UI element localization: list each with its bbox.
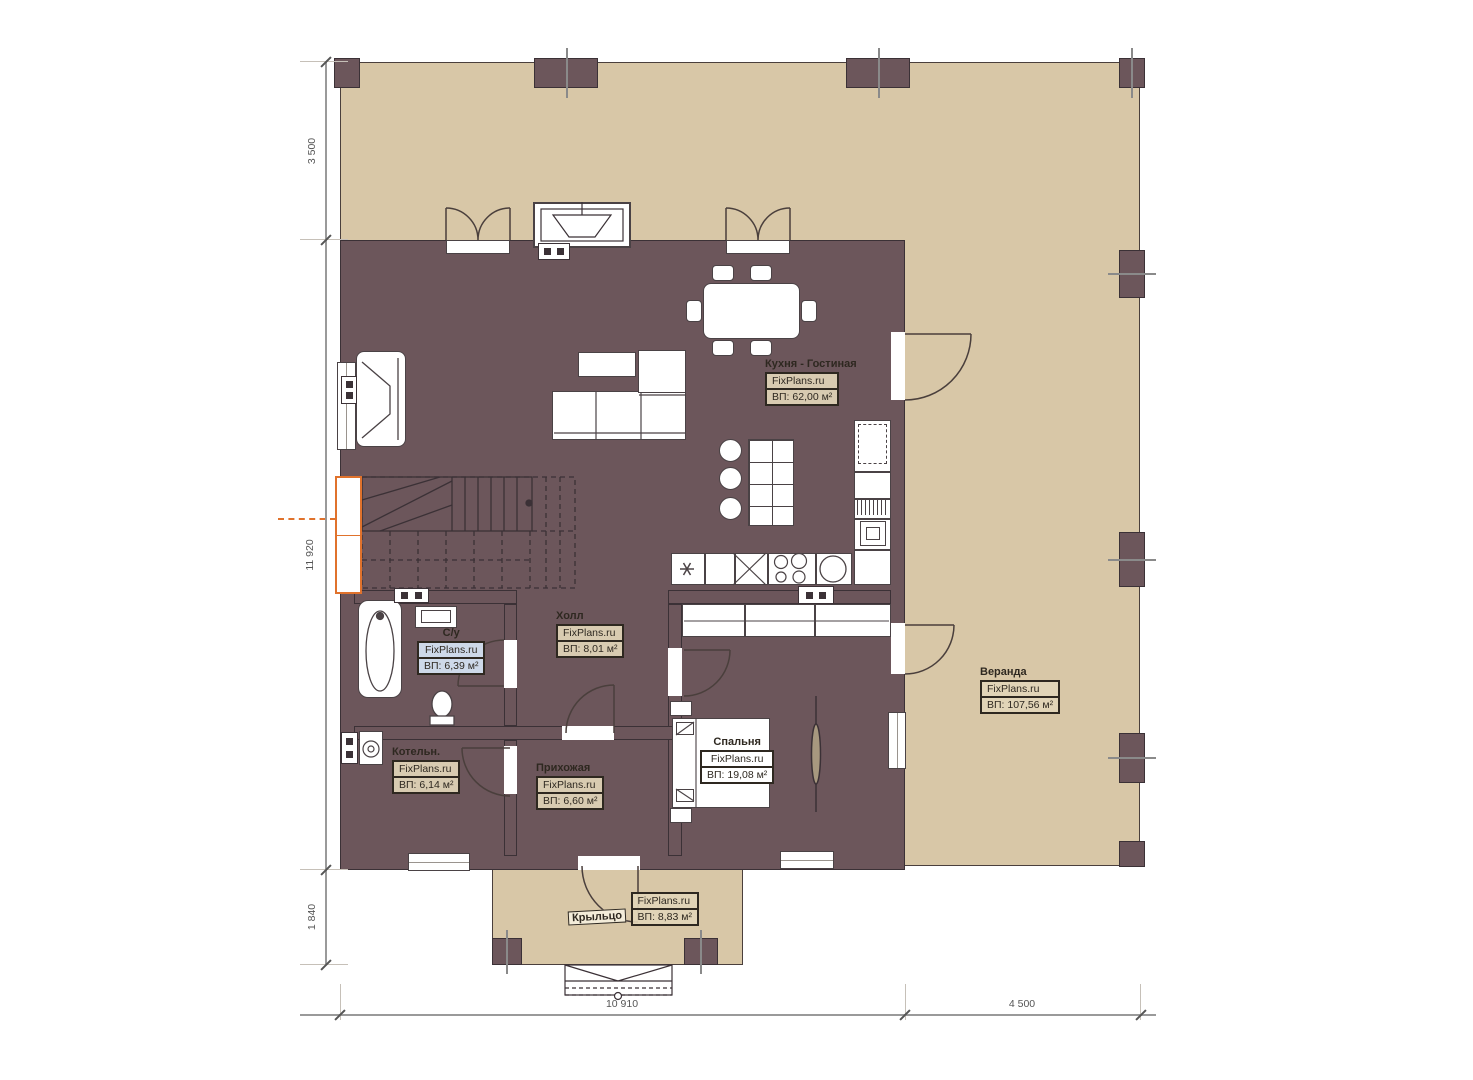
selection-guide-line xyxy=(278,518,336,520)
french-door-sill-left xyxy=(446,240,510,254)
brand-text: FixPlans.ru xyxy=(702,752,772,766)
brand-text: FixPlans.ru xyxy=(538,778,602,792)
window-boiler-bottom xyxy=(408,853,470,871)
column-top-left xyxy=(334,58,360,88)
pillow xyxy=(676,722,694,735)
door-gap-hall-entry xyxy=(562,726,614,740)
brand-text: FixPlans.ru xyxy=(558,626,622,640)
pillow xyxy=(676,789,694,802)
vent-box-fireplace xyxy=(341,376,357,404)
kitchen-counter xyxy=(671,553,852,585)
column-bottom-right xyxy=(1119,841,1145,867)
bathroom-sink xyxy=(415,606,457,628)
vent-box-chimney xyxy=(538,243,570,260)
window-bedroom-right xyxy=(888,712,906,769)
sofa-seat xyxy=(552,391,686,440)
fridge-vent-grill xyxy=(857,499,888,515)
coffee-table xyxy=(578,352,636,377)
door-gap-veranda-bedroom xyxy=(891,623,905,674)
axis-line xyxy=(506,930,508,974)
room-label-entry: Прихожая FixPlans.ru ВП: 6,60 м² xyxy=(536,762,604,810)
dim-label-bottom-veranda: 4 500 xyxy=(1009,998,1035,1010)
french-door-sill-right xyxy=(726,240,790,254)
wall-middle-horizontal xyxy=(354,726,682,740)
vent-box-bathroom-wall xyxy=(394,588,429,603)
bathtub xyxy=(358,600,402,698)
room-name: Крыльцо xyxy=(568,908,627,925)
axis-line xyxy=(700,930,702,974)
room-name: Спальня xyxy=(700,736,774,748)
dimension-line-left xyxy=(325,62,327,965)
area-text: ВП: 107,56 м² xyxy=(982,696,1058,712)
dining-chair xyxy=(712,265,734,281)
fridge-dashed-outline xyxy=(858,424,887,464)
axis-line xyxy=(566,48,568,98)
floor-plan-canvas: Кухня - Гостиная FixPlans.ru ВП: 62,00 м… xyxy=(0,0,1473,1080)
window-bedroom-bottom xyxy=(780,851,834,869)
porch-steps xyxy=(565,965,672,1000)
area-text: ВП: 6,60 м² xyxy=(538,792,602,808)
room-name: Веранда xyxy=(980,666,1060,678)
dim-label-left-middle: 11 920 xyxy=(304,539,316,570)
axis-line xyxy=(1108,559,1156,561)
door-gap-veranda-kitchen xyxy=(891,332,905,400)
electric-box-kitchen xyxy=(798,586,834,604)
bar-stool xyxy=(719,497,742,520)
dining-chair xyxy=(750,265,772,281)
bar-stool xyxy=(719,467,742,490)
room-name: Котельн. xyxy=(392,746,460,758)
area-text: ВП: 6,14 м² xyxy=(394,776,458,792)
room-label-boiler: Котельн. FixPlans.ru ВП: 6,14 м² xyxy=(392,746,460,794)
dim-label-bottom-house: 10 910 xyxy=(606,998,638,1010)
nightstand xyxy=(670,808,692,823)
room-name: Холл xyxy=(556,610,624,622)
axis-line xyxy=(878,48,880,98)
area-text: ВП: 62,00 м² xyxy=(767,388,837,404)
room-label-bathroom: С/у FixPlans.ru ВП: 6,39 м² xyxy=(417,627,485,675)
axis-line xyxy=(1131,48,1133,98)
veranda-floor-right xyxy=(905,240,1140,866)
room-label-veranda: Веранда FixPlans.ru ВП: 107,56 м² xyxy=(980,666,1060,714)
dim-label-left-bottom: 1 840 xyxy=(306,904,318,930)
wardrobe xyxy=(682,604,891,637)
brand-text: FixPlans.ru xyxy=(419,643,483,657)
chimney xyxy=(533,202,631,248)
kitchen-bar xyxy=(748,439,794,526)
area-text: ВП: 6,39 м² xyxy=(419,657,483,673)
room-label-porch: Крыльцо FixPlans.ru ВП: 8,83 м² xyxy=(568,892,699,926)
nightstand xyxy=(670,701,692,716)
door-gap-boiler xyxy=(504,746,517,794)
bar-stool xyxy=(719,439,742,462)
dining-chair xyxy=(686,300,702,322)
room-label-kitchen-living: Кухня - Гостиная FixPlans.ru ВП: 62,00 м… xyxy=(765,358,857,406)
room-name: Прихожая xyxy=(536,762,604,774)
brand-text: FixPlans.ru xyxy=(982,682,1058,696)
oven xyxy=(860,521,886,546)
veranda-floor-top xyxy=(340,62,1140,240)
vent-box-boiler xyxy=(341,732,358,764)
fireplace xyxy=(356,351,406,447)
door-gap-bathroom xyxy=(504,640,517,688)
dining-chair xyxy=(750,340,772,356)
room-name: Кухня - Гостиная xyxy=(765,358,857,370)
dining-chair xyxy=(712,340,734,356)
area-text: ВП: 8,83 м² xyxy=(633,908,697,924)
brand-text: FixPlans.ru xyxy=(767,374,837,388)
washing-machine xyxy=(359,731,383,765)
door-gap-bedroom xyxy=(668,648,682,696)
sofa-chaise xyxy=(638,350,686,393)
window-selected[interactable] xyxy=(335,476,362,594)
dining-table xyxy=(703,283,800,339)
room-label-bedroom: Спальня FixPlans.ru ВП: 19,08 м² xyxy=(700,736,774,784)
room-label-hall: Холл FixPlans.ru ВП: 8,01 м² xyxy=(556,610,624,658)
brand-text: FixPlans.ru xyxy=(633,894,697,908)
wall-kitchen-bedroom xyxy=(668,590,891,604)
dim-label-left-top: 3 500 xyxy=(306,138,318,164)
area-text: ВП: 19,08 м² xyxy=(702,766,772,782)
axis-line xyxy=(1108,757,1156,759)
axis-line xyxy=(1108,273,1156,275)
room-name: С/у xyxy=(417,627,485,639)
dining-chair xyxy=(801,300,817,322)
area-text: ВП: 8,01 м² xyxy=(558,640,622,656)
door-gap-porch xyxy=(578,856,640,870)
brand-text: FixPlans.ru xyxy=(394,762,458,776)
dimension-line-bottom xyxy=(300,1014,1156,1016)
